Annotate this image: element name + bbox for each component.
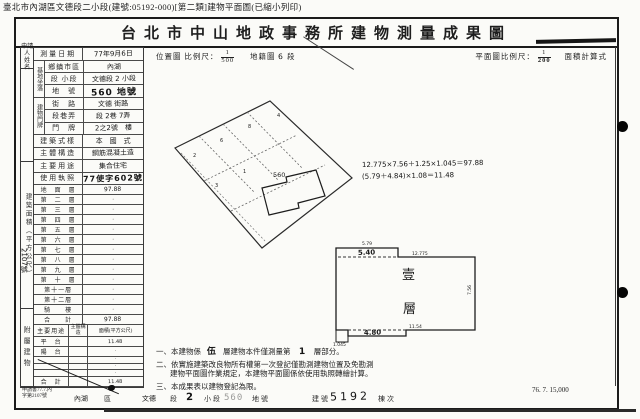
- document-border: 台北市中山地政事務所建物測量成果圖 申請人 姓 名 建築面積（平方公尺） 附屬建…: [14, 17, 619, 410]
- building-footprint: [262, 170, 325, 215]
- dim-right-edge: 7.56: [467, 285, 473, 295]
- footer-strip: 申請書77.7.內 字第2107號 內湖 區 文德 段 2 小段 560 地號 …: [20, 386, 615, 408]
- form-axis-column: 申請人 姓 名 建築面積（平方公尺） 附屬建物 2107號: [21, 48, 34, 387]
- plan-scale-fraction: 1200: [538, 50, 551, 65]
- print-info: 76. 7. 15,000: [532, 386, 569, 394]
- location-sketch: 560 2 6 8 4 3 1: [167, 93, 357, 253]
- dim-bottom-balcony: 4.80: [364, 328, 382, 337]
- location-scale-fraction: 1500: [221, 50, 234, 65]
- area-calculation: 12.775×7.56＋1.25×1.045＝97.88 (5.79＋4.84)…: [362, 159, 483, 183]
- floor-row: 第 五 層·: [34, 225, 143, 235]
- punch-hole-top: [617, 121, 628, 132]
- formula-annex: (5.79＋4.84)×1.08＝11.48: [362, 170, 454, 183]
- footer-building-label: 建號: [312, 394, 330, 404]
- site-row-section: 段 小段 文德段 2 小段: [45, 73, 143, 85]
- annex-axis: 附屬建物: [21, 309, 33, 387]
- floor-row-arcade: 騎 樓·: [34, 305, 143, 315]
- svg-text:3: 3: [215, 183, 218, 189]
- floor-area-table: 地 面 層97.88 第 二 層· 第 三 層· 第 四 層· 第 五 層· 第…: [34, 185, 143, 325]
- address-axis: 建物門牌: [35, 104, 44, 128]
- application-number-note: 申請書77.7.內 字第2107號: [22, 388, 70, 400]
- dim-top-balcony-small: 5.79: [362, 241, 372, 247]
- site-group: 基地坐落 鄉鎮市區 內湖 段 小段 文德段 2 小段 地 號 560 地號: [34, 61, 143, 98]
- floor-row: 地 面 層97.88: [34, 185, 143, 195]
- style-row: 建築式樣 本 國 式: [34, 135, 143, 148]
- plan-scale-header: 平面圖比例尺：1200 面積計算式: [475, 50, 607, 65]
- usage-row: 主要用途 集合住宅: [34, 160, 143, 173]
- address-group: 建物門牌 街 路 文德 街路 段巷弄 段 2巷 7弄 門 牌 2之2號 樓: [34, 98, 143, 135]
- page-title: 台北市中山地政事務所建物測量成果圖: [121, 22, 512, 43]
- floor-row: 第 四 層·: [34, 215, 143, 225]
- floor-row: 第十二層·: [34, 295, 143, 305]
- floor-row: 第 七 層·: [34, 245, 143, 255]
- footer-section-label: 段: [170, 394, 179, 404]
- cadastral-hand-value: 6: [278, 52, 284, 61]
- left-form-table: 申請人 姓 名 建築面積（平方公尺） 附屬建物 2107號 測量日期 77年9月…: [20, 47, 144, 388]
- applicant-blank-cell: [21, 69, 33, 162]
- handwritten-serial: 2107號: [19, 248, 30, 273]
- survey-date-row: 測量日期 77年9月6日: [34, 48, 143, 61]
- annex-table: 主要用途 主體構造 面積(平方公尺) 平 台 11.48 陽 台 ·: [34, 325, 143, 387]
- punch-hole-bottom: [617, 287, 628, 298]
- svg-text:1: 1: [243, 169, 246, 175]
- survey-date-value: 77年9月6日: [94, 49, 133, 59]
- floor-row: 第十一層·: [34, 285, 143, 295]
- floor-row: 第 十 層·: [34, 275, 143, 285]
- footer-parcel-label: 地號: [252, 394, 270, 404]
- applicant-label-1: 申請人: [21, 44, 33, 58]
- floor-row-total: 合 計97.88: [34, 315, 143, 325]
- note-1-hand-floor-no: 1: [298, 347, 306, 358]
- scan-artifact-bottom: [104, 409, 636, 412]
- floor-row: 第 六 層·: [34, 235, 143, 245]
- annex-row-platform: 平 台 11.48: [34, 337, 143, 347]
- license-row: 使用執照 77使字602號: [34, 173, 143, 186]
- svg-text:8: 8: [248, 124, 251, 130]
- svg-text:4: 4: [277, 113, 280, 119]
- floor-row: 第 三 層·: [34, 205, 143, 215]
- annex-row-blank: ·: [34, 357, 143, 364]
- map-area: 位置圖 比例尺：1500 地籍圖 6 段 平面圖比例尺：1200 面積計算式: [142, 47, 616, 386]
- annex-header-row: 主要用途 主體構造 面積(平方公尺): [34, 325, 143, 337]
- footer-district-value: 內湖: [74, 394, 88, 404]
- floor-plan: 5.40 5.79 12.775 7.56 4.80 1.045 11.54 壹…: [332, 233, 482, 348]
- structure-row: 主體構造 鋼筋混凝土造: [34, 148, 143, 161]
- address-row-number: 門 牌 2之2號 樓: [45, 123, 143, 134]
- location-map-header: 位置圖 比例尺：1500 地籍圖 6 段: [156, 50, 296, 65]
- form-main-column: 測量日期 77年9月6日 基地坐落 鄉鎮市區 內湖 段 小段 文德段 2 小段: [34, 48, 143, 387]
- footer-parcel-stamp: 560: [224, 393, 243, 403]
- footer-section-value: 文德: [142, 394, 156, 404]
- dim-bottom-edge: 11.54: [409, 324, 422, 330]
- footer-district-label: 區: [104, 394, 113, 404]
- scanned-survey-document: 臺北市內湖區文德段二小段(建號:05192-000)[第二類]建物平面圖(已縮小…: [0, 0, 640, 419]
- dim-top-edge: 12.775: [412, 251, 428, 257]
- floor-row: 第 二 層·: [34, 195, 143, 205]
- applicant-name-cell: 申請人 姓 名: [21, 48, 33, 69]
- floor-label-bottom: 層: [403, 302, 416, 317]
- address-row-street: 街 路 文德 街路: [45, 98, 143, 110]
- footer-subsection-value: 2: [186, 392, 193, 403]
- footer-building-number: 5192: [330, 389, 370, 403]
- footer-subsection-label: 小段: [204, 394, 222, 404]
- site-axis: 基地坐落: [35, 67, 44, 91]
- svg-text:6: 6: [220, 138, 223, 144]
- floor-row: 第 八 層·: [34, 255, 143, 265]
- dim-top-balcony: 5.40: [358, 248, 376, 257]
- note-2-continued: 建物平面圖作業規定，本建物平面圖係依使用執照轉繪計算。: [156, 370, 524, 379]
- parcel-number-label: 560: [273, 171, 285, 179]
- annex-row-balcony: 陽 台 ·: [34, 347, 143, 357]
- note-1: 一、本建物係伍層建物本件僅測量第1層部分。: [156, 347, 524, 357]
- title-row: 台北市中山地政事務所建物測量成果圖: [16, 19, 617, 48]
- building-area-axis: 建築面積（平方公尺）: [21, 162, 33, 309]
- site-row-parcel: 地 號 560 地號: [45, 85, 143, 97]
- survey-date-label: 測量日期: [34, 48, 83, 60]
- address-row-lane: 段巷弄 段 2巷 7弄: [45, 110, 143, 122]
- file-header: 臺北市內湖區文德段二小段(建號:05192-000)[第二類]建物平面圖(已縮小…: [3, 1, 302, 13]
- annex-row-blank: ·: [34, 370, 143, 377]
- floor-row: 第 九 層·: [34, 265, 143, 275]
- floor-label-top: 壹: [402, 268, 415, 283]
- svg-text:2: 2: [193, 153, 196, 159]
- footer-unit-label: 棟次: [378, 394, 396, 404]
- note-1-hand-floors: 伍: [207, 347, 217, 358]
- site-row-district: 鄉鎮市區 內湖: [45, 61, 143, 73]
